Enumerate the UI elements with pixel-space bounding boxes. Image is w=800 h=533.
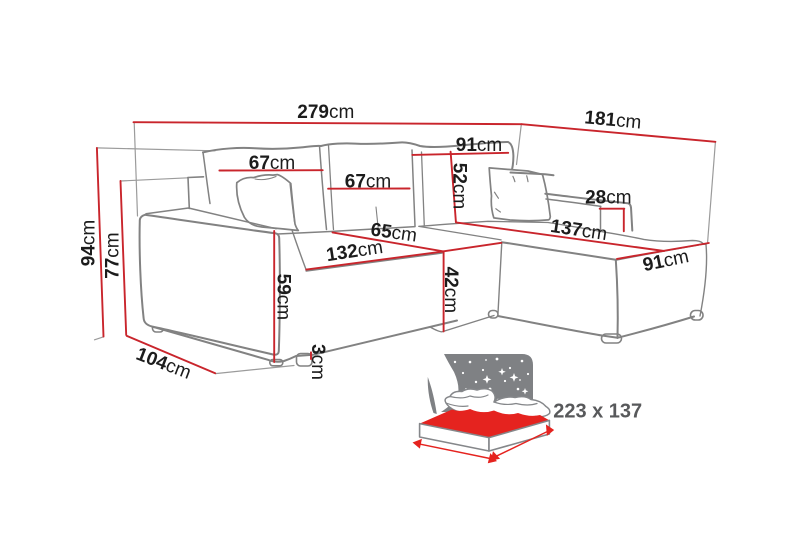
svg-text:91cm: 91cm (641, 246, 691, 276)
svg-text:181cm: 181cm (584, 107, 643, 133)
svg-text:94cm: 94cm (79, 220, 100, 266)
svg-text:223 x 137: 223 x 137 (553, 401, 642, 423)
svg-text:67cm: 67cm (345, 172, 391, 193)
svg-text:104cm: 104cm (133, 344, 194, 384)
svg-text:59cm: 59cm (273, 274, 294, 320)
svg-text:279cm: 279cm (297, 102, 354, 123)
svg-text:42cm: 42cm (440, 267, 461, 313)
svg-text:91cm: 91cm (456, 135, 502, 156)
svg-text:3cm: 3cm (307, 344, 328, 380)
svg-text:77cm: 77cm (102, 232, 123, 278)
svg-text:52cm: 52cm (449, 163, 470, 209)
svg-text:28cm: 28cm (585, 188, 631, 209)
svg-text:67cm: 67cm (249, 153, 295, 174)
svg-text:137cm: 137cm (549, 216, 609, 245)
